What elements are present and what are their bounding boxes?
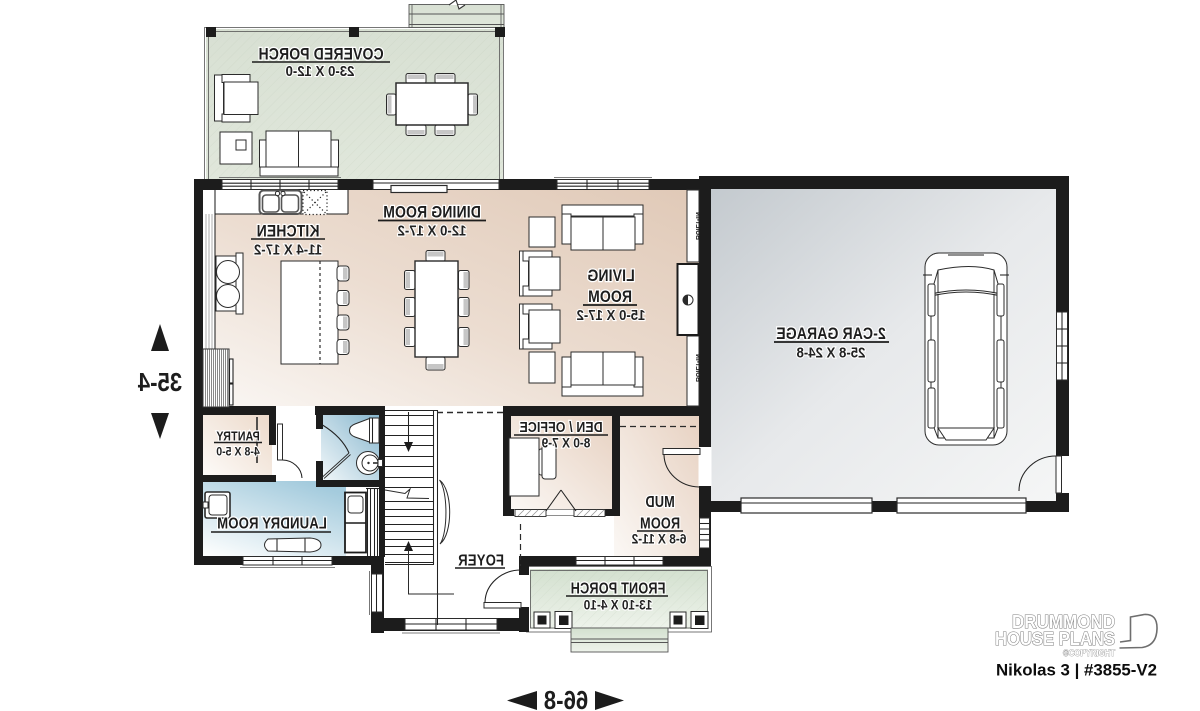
- svg-text:12-0 X 17-2: 12-0 X 17-2: [397, 222, 466, 239]
- svg-text:HOUSE PLANS: HOUSE PLANS: [995, 628, 1115, 649]
- svg-text:Nikolas 3 | #3855-V2: Nikolas 3 | #3855-V2: [996, 661, 1157, 680]
- svg-text:11-4 X 17-2: 11-4 X 17-2: [254, 241, 322, 258]
- svg-text:13-10 X 4-10: 13-10 X 4-10: [584, 597, 653, 613]
- svg-text:DEN / OFFICE: DEN / OFFICE: [519, 419, 602, 435]
- svg-text:6-8 X 11-2: 6-8 X 11-2: [632, 531, 687, 547]
- svg-text:MUD: MUD: [645, 494, 674, 511]
- svg-text:35-4: 35-4: [137, 368, 182, 397]
- svg-text:15-0 X 17-2: 15-0 X 17-2: [576, 306, 645, 323]
- svg-text:2-CAR GARAGE: 2-CAR GARAGE: [776, 325, 886, 344]
- svg-text:COVERED PORCH: COVERED PORCH: [258, 45, 383, 64]
- svg-text:KITCHEN: KITCHEN: [256, 222, 319, 241]
- svg-text:DINING ROOM: DINING ROOM: [383, 203, 481, 222]
- svg-text:LIVING: LIVING: [587, 267, 634, 286]
- svg-text:8-0 X 7-9: 8-0 X 7-9: [542, 435, 591, 451]
- svg-text:BUILT-IN: BUILT-IN: [694, 354, 702, 382]
- svg-text:FRONT PORCH: FRONT PORCH: [571, 580, 666, 597]
- svg-text:23-0 X 12-0: 23-0 X 12-0: [285, 62, 354, 79]
- svg-text:BUILT-IN: BUILT-IN: [694, 212, 702, 240]
- svg-text:FOYER: FOYER: [458, 552, 504, 569]
- svg-text:PANTRY: PANTRY: [216, 428, 260, 443]
- svg-text:25-8 X 24-8: 25-8 X 24-8: [796, 344, 865, 361]
- svg-text:ROOM: ROOM: [588, 288, 632, 307]
- svg-text:66-8: 66-8: [544, 686, 588, 711]
- svg-text:LAUNDRY ROOM: LAUNDRY ROOM: [217, 515, 327, 532]
- svg-text:4-8 X 5-0: 4-8 X 5-0: [216, 446, 259, 459]
- svg-text:©COPYRIGHT: ©COPYRIGHT: [1063, 648, 1115, 658]
